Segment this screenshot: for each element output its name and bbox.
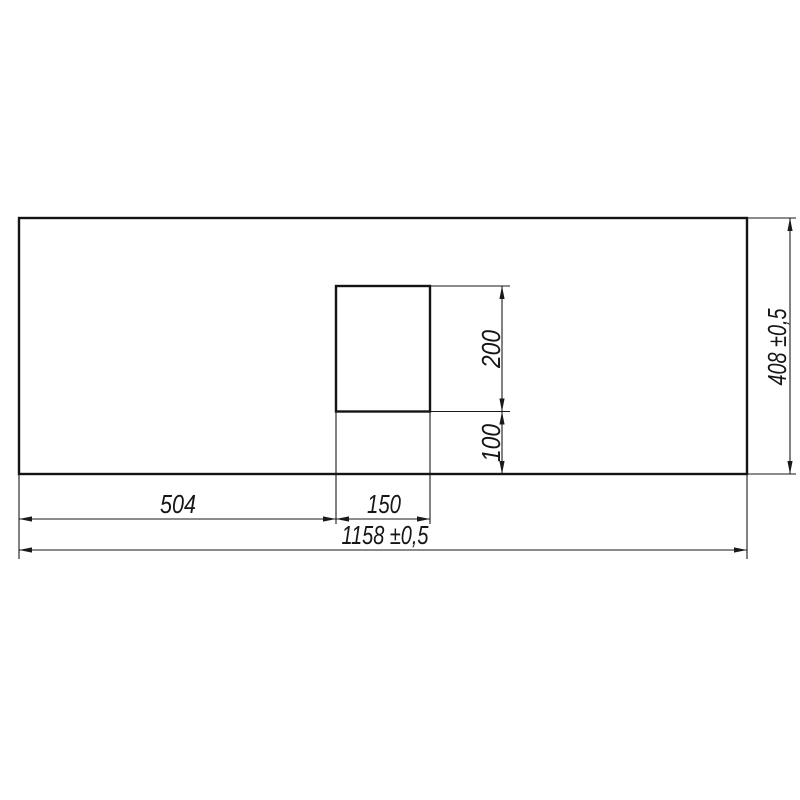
dimension-arrow — [323, 516, 336, 521]
dimension-arrow — [499, 412, 504, 425]
panel-outline — [19, 218, 747, 474]
dimension-label-overall-width: 1158 ±0,5 — [342, 520, 429, 550]
dimension-arrow — [787, 218, 792, 231]
drawing-canvas: 5041501158 ±0,5200100408 ±0,5 — [0, 0, 800, 800]
drawing-root: 5041501158 ±0,5200100408 ±0,5 — [19, 218, 796, 559]
dimension-arrow — [19, 516, 32, 521]
dimension-arrow — [19, 547, 32, 552]
dimension-arrow — [499, 286, 504, 299]
dimension-arrow — [734, 547, 747, 552]
technical-drawing: 5041501158 ±0,5200100408 ±0,5 — [0, 0, 800, 800]
dimension-arrow — [787, 461, 792, 474]
dimension-label-cutout-offset-left: 504 — [160, 489, 196, 519]
dimension-label-overall-height: 408 ±0,5 — [762, 308, 792, 385]
dimension-arrow — [499, 399, 504, 412]
dimension-label-cutout-width: 150 — [367, 489, 401, 519]
dimension-label-cutout-offset-bottom: 100 — [476, 424, 506, 462]
dimension-label-cutout-height: 200 — [476, 330, 506, 369]
cutout-outline — [336, 286, 430, 412]
